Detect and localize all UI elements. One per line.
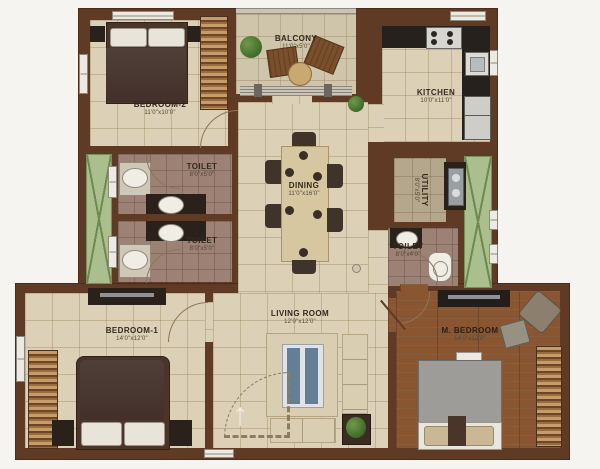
washer-door (452, 189, 460, 197)
washbasin-icon (122, 250, 148, 270)
room-label-toilet-1: TOILET 8'0"x5'0" (174, 162, 230, 180)
washbasin-icon (122, 168, 148, 188)
wc-icon (158, 196, 184, 214)
stove-icon (426, 27, 462, 49)
window-icon (489, 50, 498, 76)
nightstand (90, 26, 105, 42)
duct-right (464, 156, 492, 288)
room-dims: 11'0"x16'0" (274, 191, 334, 199)
vent-window-icon (108, 166, 117, 198)
vent-window-icon (108, 236, 117, 268)
window-icon (79, 54, 88, 94)
window-icon (489, 244, 498, 264)
room-name: DINING (274, 181, 334, 191)
fridge-divider (465, 115, 490, 116)
plate (299, 151, 308, 160)
room-name: BEDROOM-1 (82, 326, 182, 336)
room-name: KITCHEN (388, 88, 484, 98)
floor-plan: ↑ BEDROOM-2 11'0"x10'0" BALCONY 11'0"x5'… (0, 0, 600, 469)
tv-unit (88, 288, 166, 305)
entry-arrow-icon: ↑ (232, 398, 248, 430)
room-name: LIVING ROOM (250, 309, 350, 319)
railing-post (254, 84, 262, 97)
room-label-toilet-3: TOILET 8'0"x4'0" (382, 242, 434, 260)
pillow (124, 422, 165, 446)
room-label-balcony: BALCONY 11'0"x5'0" (246, 34, 346, 52)
bed-blanket (80, 360, 164, 420)
sink-icon (465, 52, 489, 76)
room-label-kitchen: KITCHEN 10'0"x11'0" (388, 88, 484, 106)
pillow (462, 426, 494, 446)
nightstand (170, 420, 192, 446)
room-name: BEDROOM-2 (110, 100, 210, 110)
pillow (110, 28, 147, 47)
dining-chair (327, 208, 343, 232)
dining-chair (292, 132, 316, 146)
balcony-table (288, 62, 312, 86)
pillow (81, 422, 122, 446)
room-label-utility: UTILITY 8'0"x5'0" (390, 160, 450, 220)
burner (447, 39, 453, 45)
corridor-toilet-3 (368, 230, 388, 293)
room-dims: 11'0"x5'0" (246, 44, 346, 52)
room-label-bedroom-2: BEDROOM-2 11'0"x10'0" (110, 100, 210, 118)
washer-door (452, 174, 460, 182)
master-door-opening-2 (400, 284, 428, 292)
room-label-living-room: LIVING ROOM 12'0"x12'0" (250, 309, 350, 327)
table-glass (305, 348, 318, 404)
plant-icon (346, 417, 366, 438)
window-icon (450, 11, 486, 21)
window-icon (489, 210, 498, 230)
balcony-outer-rail (236, 8, 356, 14)
railing-post (324, 84, 332, 97)
room-name: TOILET (174, 162, 230, 172)
wardrobe (536, 346, 562, 447)
room-name: TOILET (174, 236, 230, 246)
tv-unit (438, 290, 510, 307)
room-label-bedroom-1: BEDROOM-1 14'0"x12'0" (82, 326, 182, 344)
room-name: BALCONY (246, 34, 346, 44)
bed-runner (448, 416, 466, 446)
room-dims: 10'0"x11'0" (388, 98, 484, 106)
wardrobe (200, 16, 228, 110)
plant-icon (348, 96, 364, 112)
sofa (342, 334, 368, 414)
room-name: TOILET (382, 242, 434, 252)
sink-basin (470, 57, 485, 72)
room-dims: 8'0"x4'0" (382, 252, 434, 260)
plate (285, 168, 294, 177)
dining-chair (292, 260, 316, 274)
room-label-toilet-2: TOILET 8'0"x5'0" (174, 236, 230, 254)
room-dims: 8'0"x5'0" (411, 160, 419, 220)
burner (447, 31, 453, 37)
tv-screen (100, 293, 154, 297)
dining-table (281, 146, 329, 262)
room-dims: 14'0"x12'0" (82, 336, 182, 344)
room-label-master-bedroom: M. BEDROOM 14'0"x12'0" (420, 326, 520, 344)
entrance-threshold (204, 449, 234, 458)
room-dims: 8'0"x5'0" (174, 172, 230, 180)
washing-machine-icon (448, 168, 464, 206)
room-label-dining: DINING 11'0"x16'0" (274, 181, 334, 199)
room-name: M. BEDROOM (420, 326, 520, 336)
room-dims: 14'0"x12'0" (420, 336, 520, 344)
burner (431, 39, 437, 45)
plate (299, 248, 308, 257)
room-dims: 11'0"x10'0" (110, 110, 210, 118)
pillow (148, 28, 185, 47)
dining-chair (265, 204, 281, 228)
plate (313, 210, 322, 219)
nightstand (52, 420, 74, 446)
window-icon (16, 336, 25, 382)
plate (285, 206, 294, 215)
kitchen-opening (368, 104, 384, 142)
room-name: UTILITY (419, 160, 429, 220)
tv-screen (448, 295, 500, 299)
burner (431, 31, 437, 37)
window-icon (112, 11, 174, 20)
drain-icon (352, 264, 361, 273)
plate (313, 172, 322, 181)
room-dims: 8'0"x5'0" (174, 246, 230, 254)
bed-blanket (106, 48, 186, 102)
room-dims: 12'0"x12'0" (250, 319, 350, 327)
